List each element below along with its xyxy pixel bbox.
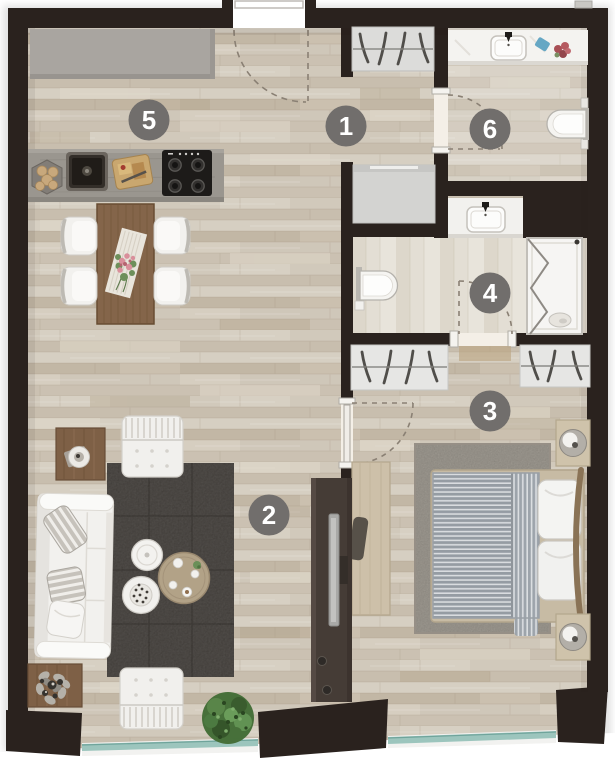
svg-text:4: 4 [483, 278, 498, 308]
svg-text:1: 1 [339, 111, 353, 141]
svg-text:2: 2 [262, 500, 276, 530]
svg-text:6: 6 [483, 114, 497, 144]
svg-text:5: 5 [142, 105, 156, 135]
svg-text:3: 3 [483, 396, 497, 426]
